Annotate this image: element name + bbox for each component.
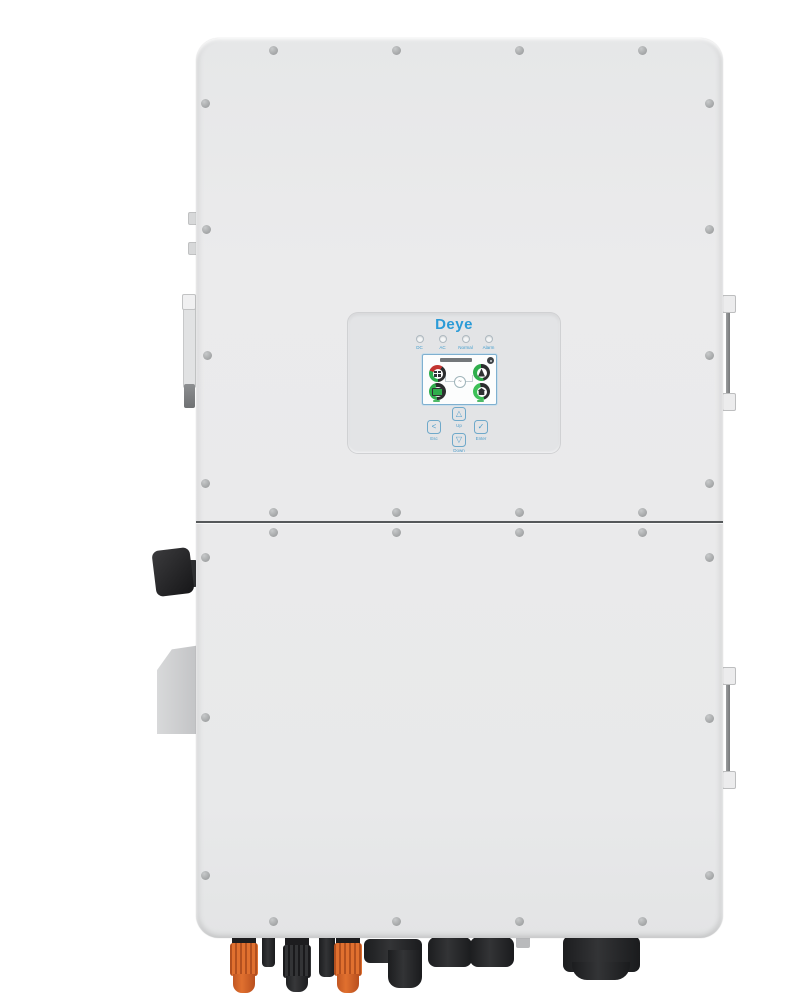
battery-connector-plug [388, 950, 422, 988]
chassis-screw [392, 528, 401, 537]
led-label: Normal [458, 345, 473, 350]
enter-button[interactable]: ✓ [474, 420, 488, 434]
chassis-screw [201, 479, 210, 488]
down-button[interactable]: ▽ [452, 433, 466, 447]
chassis-screw [269, 46, 278, 55]
down-button-label: Down [447, 448, 471, 453]
led-ac: AC [438, 335, 448, 350]
chassis-screw [392, 508, 401, 517]
chassis-screw [201, 713, 210, 722]
cable-gland [470, 937, 514, 967]
down-arrow-icon: ▽ [456, 436, 462, 444]
chassis-screw [203, 351, 212, 360]
chassis-screw [638, 917, 647, 926]
inverter-flow-node: ~ [454, 376, 466, 388]
esc-button-label: Esc [422, 436, 446, 441]
enter-check-icon: ✓ [478, 423, 485, 431]
led-normal: Normal [461, 335, 471, 350]
connector-tip [286, 976, 308, 992]
chassis-screw [269, 508, 278, 517]
chassis-screw [392, 917, 401, 926]
chassis-screw [515, 917, 524, 926]
left-heatsink-bracket [157, 644, 196, 734]
chassis-screw [705, 351, 714, 360]
brand-logo: Deye [348, 316, 560, 333]
rail-tab [722, 295, 736, 313]
chassis-screw [202, 225, 211, 234]
rail-tab [722, 771, 736, 789]
grid-tower-icon [478, 369, 485, 377]
chassis-screw [705, 871, 714, 880]
cable-gland [428, 937, 472, 967]
solar-panel-icon [434, 371, 441, 377]
chassis-screw [201, 99, 210, 108]
settings-gear-icon [487, 357, 494, 364]
battery-icon [432, 388, 443, 396]
mc4-dc-connector-black [283, 936, 311, 990]
chassis-screw [269, 528, 278, 537]
led-label: DC [416, 345, 423, 350]
right-mounting-rail-upper [722, 295, 737, 411]
lcd-screen: ~ [422, 354, 497, 405]
mc4-dc-connector-orange [334, 934, 362, 993]
gauge-value-text [433, 400, 440, 402]
enter-button-label: Enter [469, 436, 493, 441]
connector-body [283, 945, 311, 978]
chassis-screw [201, 871, 210, 880]
esc-button[interactable]: < [427, 420, 441, 434]
led-dc: DC [415, 335, 425, 350]
small-dc-connector [262, 936, 275, 967]
up-button[interactable]: △ [452, 407, 466, 421]
chassis-screw [638, 46, 647, 55]
rail-tab [722, 667, 736, 685]
control-panel: Deye DC AC Normal Alarm [348, 313, 560, 453]
dc-switch-knob[interactable] [151, 547, 194, 597]
up-button-label: Up [447, 423, 471, 428]
led-indicator-row: DC AC Normal Alarm [348, 335, 560, 350]
connector-tip [337, 974, 359, 993]
battery-gauge [429, 383, 446, 400]
led-dot [416, 335, 424, 343]
mc4-dc-connector-orange [230, 934, 258, 993]
led-dot [462, 335, 470, 343]
esc-arrow-icon: < [432, 423, 437, 431]
right-mounting-rail-lower [722, 667, 737, 789]
up-arrow-icon: △ [456, 410, 462, 418]
chassis-screw [705, 714, 714, 723]
led-label: Alarm [483, 345, 495, 350]
enclosure-seam [196, 521, 723, 523]
connector-body [334, 943, 362, 976]
led-dot [439, 335, 447, 343]
chassis-screw [515, 508, 524, 517]
led-dot [485, 335, 493, 343]
chassis-screw [705, 553, 714, 562]
home-load-icon [478, 388, 486, 395]
connector-body [230, 943, 258, 976]
chassis-screw [201, 553, 210, 562]
chassis-screw [392, 46, 401, 55]
small-dc-connector [319, 937, 335, 977]
led-label: AC [439, 345, 445, 350]
chassis-screw [269, 917, 278, 926]
load-gauge [473, 383, 490, 400]
chassis-screw [638, 528, 647, 537]
chassis-screw [638, 508, 647, 517]
rail-bar [726, 678, 730, 778]
chassis-screw [515, 46, 524, 55]
chassis-screw [705, 225, 714, 234]
ac-cable-gland-body [572, 962, 630, 980]
left-rail-tab [182, 294, 196, 310]
led-alarm: Alarm [484, 335, 494, 350]
gauge-value-text [477, 400, 484, 402]
screen-status-text [440, 358, 472, 362]
inverter-enclosure: Deye DC AC Normal Alarm [196, 38, 723, 938]
rail-tab [722, 393, 736, 411]
rail-bar [726, 306, 730, 400]
pv-gauge [429, 365, 446, 382]
chassis-screw [705, 479, 714, 488]
chassis-screw [705, 99, 714, 108]
chassis-screw [515, 528, 524, 537]
grid-gauge [473, 364, 490, 381]
inverter-product-photo: Deye DC AC Normal Alarm [0, 0, 807, 1004]
connector-tip [233, 974, 255, 993]
left-rail-end-cap [184, 384, 195, 408]
